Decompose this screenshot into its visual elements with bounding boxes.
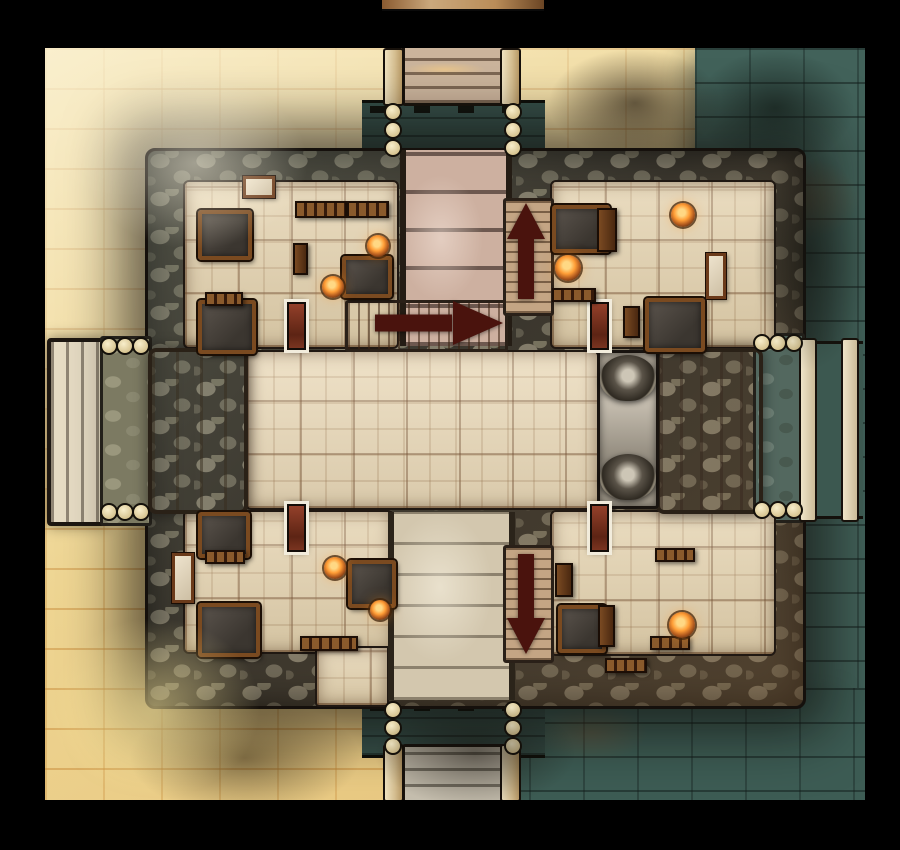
walkway-post (504, 701, 522, 719)
shelf (347, 201, 389, 218)
walkway-post (384, 719, 402, 737)
shelf (205, 292, 243, 306)
shelf (655, 548, 695, 562)
table (645, 298, 705, 352)
walkway-post (504, 121, 522, 139)
stairs-down-arrow (501, 554, 551, 654)
map-edge-sliver (382, 0, 544, 11)
walkway-post (384, 139, 402, 157)
stairs-up-arrow (501, 203, 551, 299)
cabinet (597, 208, 617, 252)
door-southwest[interactable] (287, 504, 306, 552)
table (198, 603, 260, 657)
frame-right (865, 0, 900, 850)
table (198, 210, 252, 260)
table (198, 300, 256, 354)
cabinet (555, 563, 573, 597)
walkway-post (785, 334, 803, 352)
brazier (370, 600, 390, 620)
door-northeast[interactable] (590, 302, 609, 350)
bed (243, 176, 275, 198)
brazier (671, 203, 695, 227)
frame-bottom (0, 800, 900, 850)
shelf (552, 288, 596, 302)
walkway-post (132, 503, 150, 521)
table (342, 256, 392, 298)
walkway-post (785, 501, 803, 519)
battlemap-stage (0, 0, 900, 850)
brazier (555, 255, 581, 281)
bed (172, 553, 194, 603)
shelf (295, 201, 347, 218)
walkway-post (504, 139, 522, 157)
cabinet (293, 243, 308, 275)
walkway-post (384, 103, 402, 121)
walkway-post (384, 121, 402, 139)
walkway-post (384, 737, 402, 755)
shelf (650, 636, 690, 650)
door-northwest[interactable] (287, 302, 306, 350)
frame-left (0, 0, 45, 850)
cabinet (623, 306, 640, 338)
shelf (205, 550, 245, 564)
table (348, 560, 396, 608)
shelf (605, 658, 647, 673)
walkway-post (504, 103, 522, 121)
door-southeast[interactable] (590, 504, 609, 552)
walkway-post (132, 337, 150, 355)
cabinet (598, 605, 615, 647)
stairs-east-arrow (375, 300, 503, 346)
brazier (322, 276, 344, 298)
map-canvas (45, 48, 865, 800)
brazier (669, 612, 695, 638)
walkway-post (504, 719, 522, 737)
brazier (367, 235, 389, 257)
shelf (300, 636, 358, 651)
brazier (324, 557, 346, 579)
walkway-post (504, 737, 522, 755)
map-objects-layer (45, 48, 865, 800)
walkway-post (384, 701, 402, 719)
bed (706, 253, 726, 299)
